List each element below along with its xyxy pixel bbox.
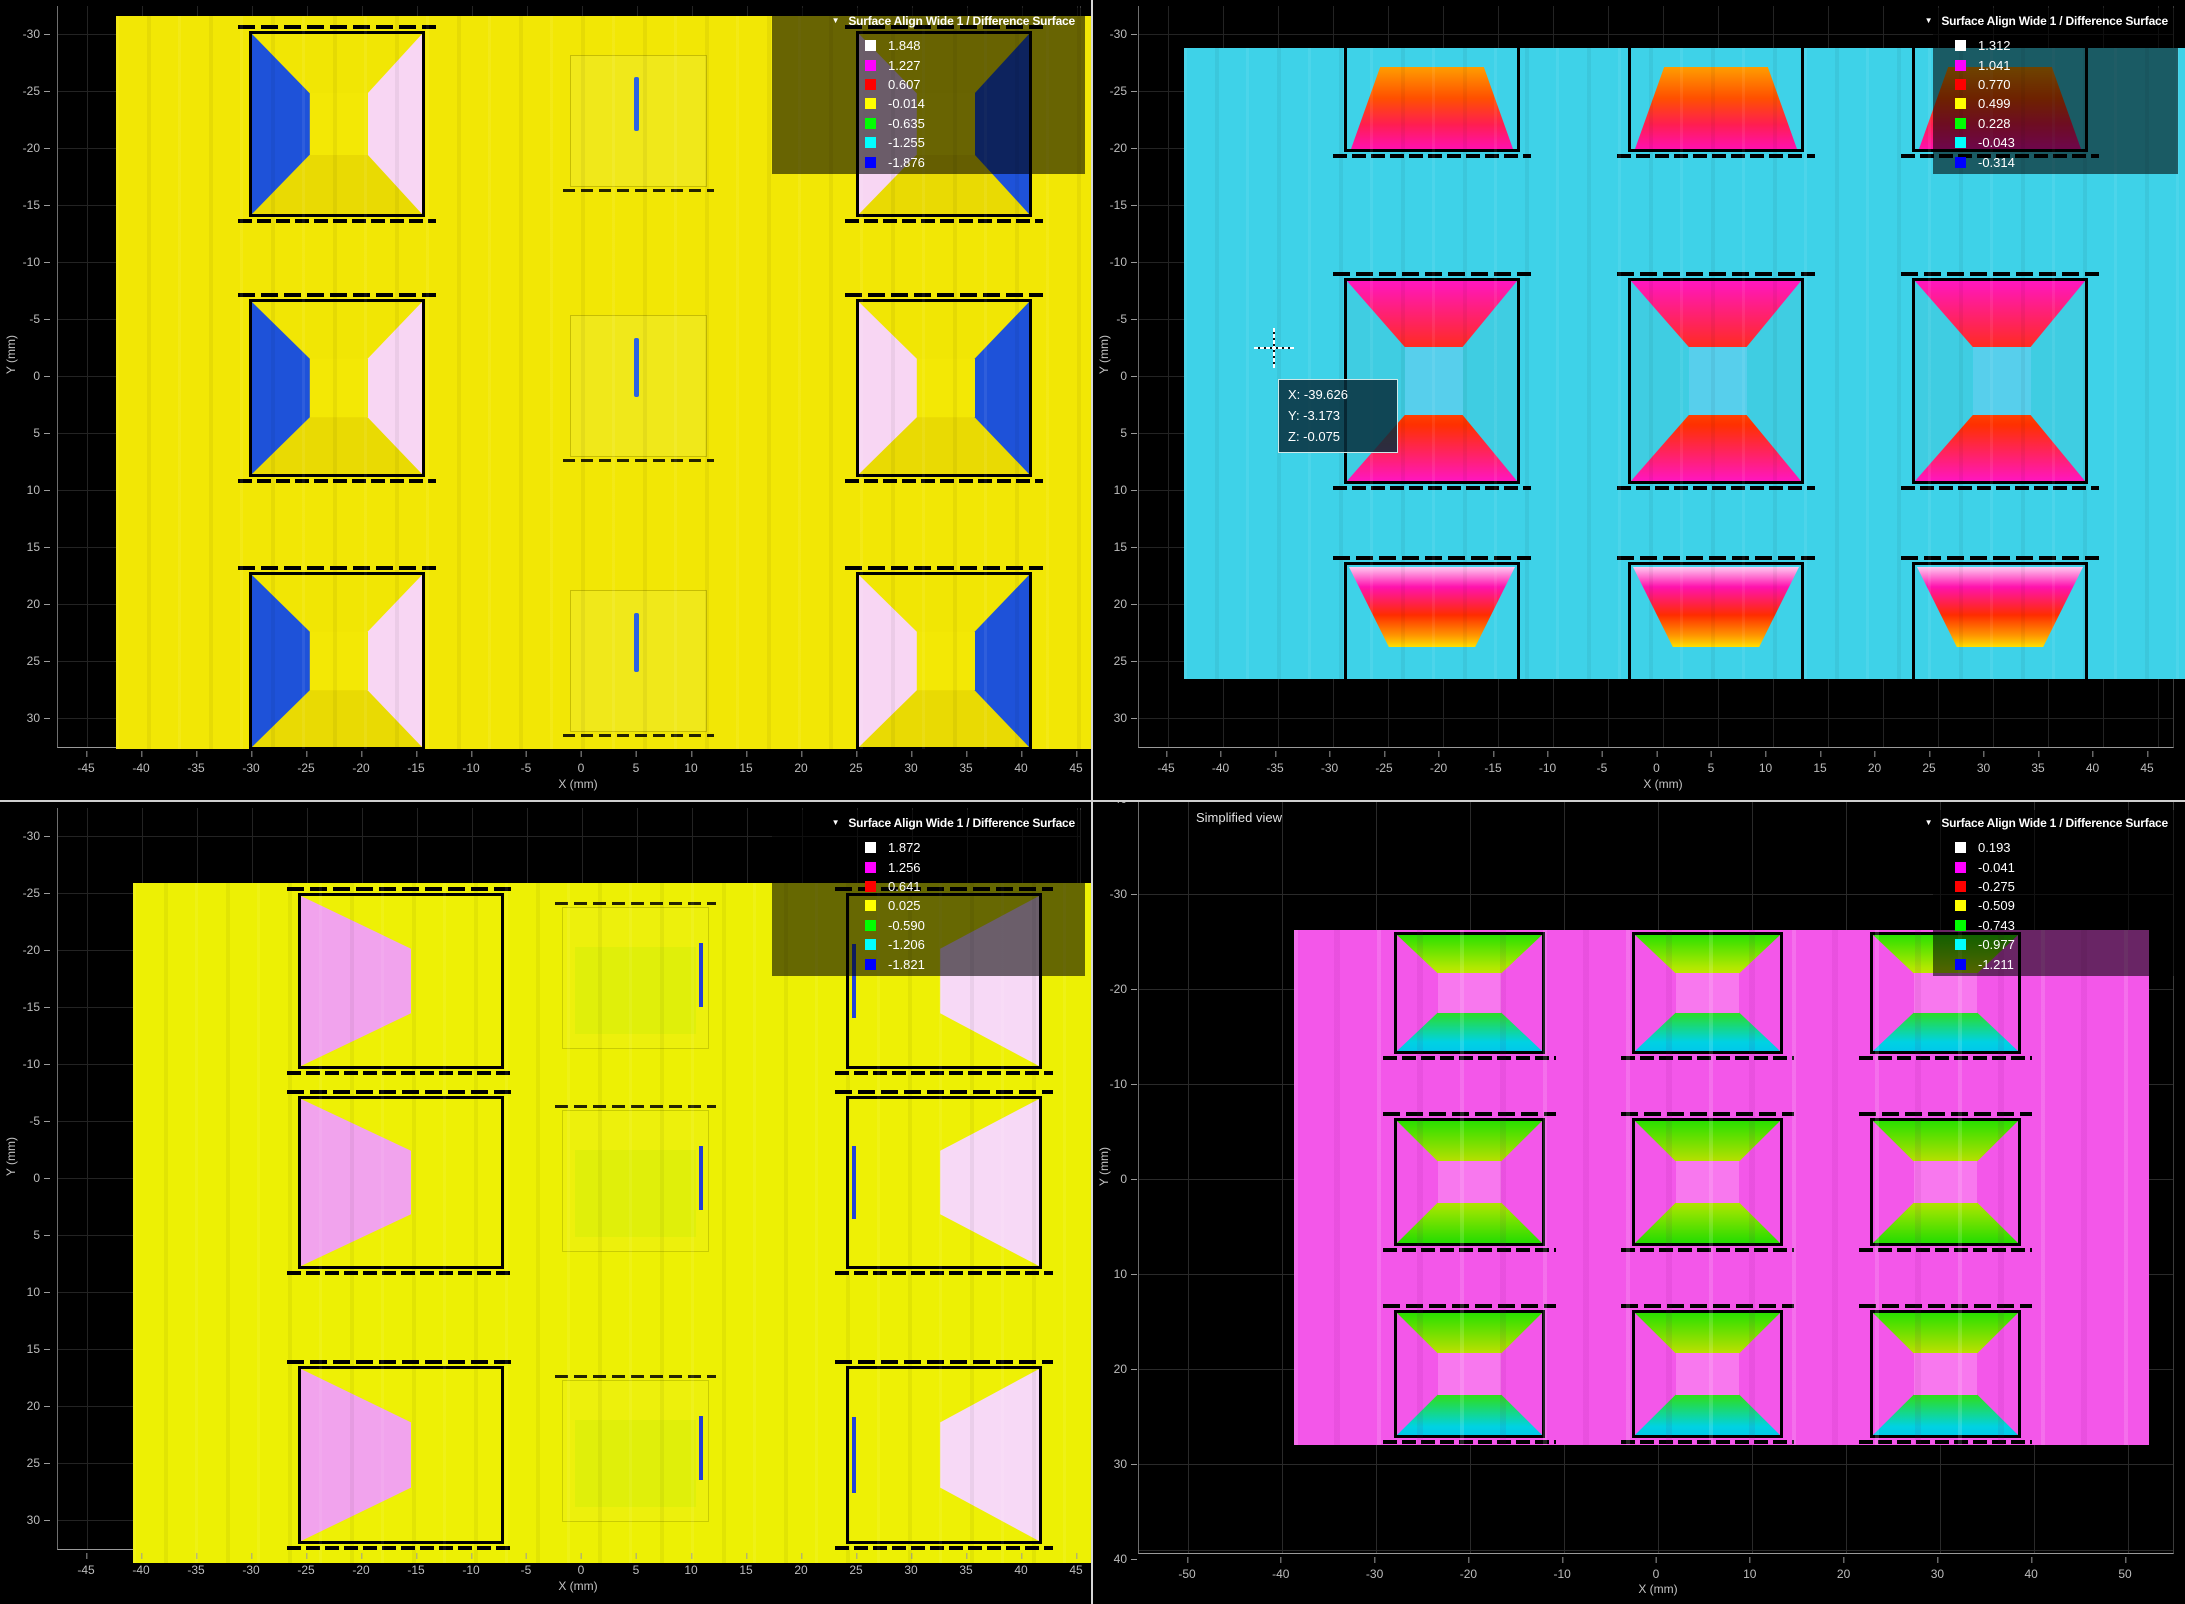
legend-entry: 0.641 xyxy=(865,877,925,896)
legend-entry: 0.770 xyxy=(1955,75,2015,94)
legend-swatch-icon xyxy=(1955,881,1966,892)
legend-title[interactable]: ▼Surface Align Wide 1 / Difference Surfa… xyxy=(1925,14,2168,28)
y-tick-label: 15 xyxy=(27,540,40,554)
x-tick-label: 10 xyxy=(1743,1567,1756,1581)
y-axis-label: Y (mm) xyxy=(4,335,18,374)
pocket-feature-faint xyxy=(571,591,706,731)
tooltip-line: Y: -3.173 xyxy=(1288,406,1388,427)
y-tick-label: -20 xyxy=(1110,982,1127,996)
y-tick-label: 5 xyxy=(33,1228,40,1242)
x-tick-label: 40 xyxy=(2025,1567,2038,1581)
y-tick-label: -10 xyxy=(1110,1077,1127,1091)
pocket-feature xyxy=(846,1096,1042,1269)
legend-entry: 0.228 xyxy=(1955,114,2015,133)
legend-value: -0.509 xyxy=(1978,898,2015,913)
legend-entry: -1.255 xyxy=(865,133,925,152)
pocket-feature xyxy=(249,31,425,217)
x-axis-ticks: -45-40-35-30-25-20-15-10-505101520253035… xyxy=(0,1554,1092,1588)
collapse-triangle-icon[interactable]: ▼ xyxy=(1925,16,1933,25)
legend-entries: 1.8481.2270.607-0.014-0.635-1.255-1.876 xyxy=(865,36,925,172)
legend-swatch-icon xyxy=(1955,939,1966,950)
y-tick-label: 5 xyxy=(33,426,40,440)
legend-entry: 1.227 xyxy=(865,55,925,74)
x-tick-label: 45 xyxy=(1069,761,1082,775)
x-tick-label: -15 xyxy=(1484,761,1501,775)
y-tick-label: -20 xyxy=(1110,141,1127,155)
pocket-feature-clipped xyxy=(1628,562,1804,679)
pocket-feature-clipped xyxy=(1344,48,1520,152)
collapse-triangle-icon[interactable]: ▼ xyxy=(832,818,840,827)
legend-value: -1.211 xyxy=(1978,957,2014,972)
y-tick-label: -25 xyxy=(23,886,40,900)
y-tick-label: -10 xyxy=(1110,255,1127,269)
x-tick-label: 30 xyxy=(904,1563,917,1577)
x-tick-label: 20 xyxy=(1837,1567,1850,1581)
pocket-feature xyxy=(1632,1310,1783,1438)
pocket-feature xyxy=(846,1366,1042,1544)
x-tick-label: 30 xyxy=(904,761,917,775)
y-tick-label: -10 xyxy=(23,255,40,269)
x-axis-label: X (mm) xyxy=(558,777,597,791)
x-tick-label: -10 xyxy=(462,761,479,775)
slit-mark xyxy=(634,338,639,397)
pocket-feature xyxy=(1632,932,1783,1054)
legend-entry: 1.848 xyxy=(865,36,925,55)
legend-entries: 1.3121.0410.7700.4990.228-0.043-0.314 xyxy=(1955,36,2015,172)
x-tick-label: -30 xyxy=(1366,1567,1383,1581)
pocket-feature-faint xyxy=(571,316,706,456)
x-tick-label: 10 xyxy=(684,1563,697,1577)
y-tick-label: -30 xyxy=(23,829,40,843)
x-tick-label: -15 xyxy=(407,761,424,775)
y-tick-label: 10 xyxy=(1114,1267,1127,1281)
x-tick-label: 15 xyxy=(739,1563,752,1577)
legend: ▼Surface Align Wide 1 / Difference Surfa… xyxy=(1933,8,2178,174)
legend-swatch-icon xyxy=(1955,959,1966,970)
surface-map[interactable] xyxy=(133,883,1092,1563)
pocket-feature xyxy=(1870,1310,2021,1438)
slit-mark xyxy=(852,1146,856,1219)
cursor-tooltip: X: -39.626Y: -3.173Z: -0.075 xyxy=(1278,379,1398,453)
y-axis-ticks: -30-25-20-15-10-5051015202530 xyxy=(0,0,52,802)
x-tick-label: -10 xyxy=(462,1563,479,1577)
legend-swatch-icon xyxy=(1955,137,1966,148)
legend-entry: -0.275 xyxy=(1955,877,2015,896)
y-axis-label: Y (mm) xyxy=(1097,335,1111,374)
legend-entry: -0.509 xyxy=(1955,896,2015,915)
panel-divider-horizontal[interactable] xyxy=(0,800,2185,802)
collapse-triangle-icon[interactable]: ▼ xyxy=(832,16,840,25)
slit-mark xyxy=(634,77,639,132)
legend-swatch-icon xyxy=(1955,920,1966,931)
legend-swatch-icon xyxy=(865,98,876,109)
legend-entry: 0.499 xyxy=(1955,94,2015,113)
y-tick-label: 0 xyxy=(1120,1172,1127,1186)
x-tick-label: -40 xyxy=(132,1563,149,1577)
legend-value: -0.041 xyxy=(1978,860,2015,875)
pocket-feature xyxy=(1394,932,1545,1054)
legend-swatch-icon xyxy=(865,862,876,873)
y-tick-label: 15 xyxy=(1114,540,1127,554)
legend-swatch-icon xyxy=(1955,79,1966,90)
y-tick-label: 0 xyxy=(33,369,40,383)
legend-swatch-icon xyxy=(865,842,876,853)
slit-mark xyxy=(699,1146,703,1210)
x-axis-ticks: -45-40-35-30-25-20-15-10-505101520253035… xyxy=(0,752,1092,786)
x-tick-label: -30 xyxy=(242,761,259,775)
legend-value: 0.499 xyxy=(1978,96,2011,111)
tooltip-line: Z: -0.075 xyxy=(1288,427,1388,448)
pocket-feature-faint xyxy=(571,56,706,186)
pocket-feature xyxy=(1912,278,2088,484)
panel-bottom-right: Simplified view -40-30-20-10010203040 -5… xyxy=(1093,802,2185,1604)
legend-value: -0.275 xyxy=(1978,879,2015,894)
legend-swatch-icon xyxy=(1955,900,1966,911)
legend-entry: 1.312 xyxy=(1955,36,2015,55)
x-tick-label: -45 xyxy=(1157,761,1174,775)
y-tick-label: 10 xyxy=(27,483,40,497)
legend-entry: -0.635 xyxy=(865,114,925,133)
pocket-feature-faint xyxy=(563,908,708,1048)
x-tick-label: -40 xyxy=(1272,1567,1289,1581)
y-tick-label: -20 xyxy=(23,141,40,155)
slit-mark xyxy=(699,1416,703,1480)
x-tick-label: 0 xyxy=(1653,1567,1660,1581)
legend-value: 0.607 xyxy=(888,77,921,92)
legend-swatch-icon xyxy=(865,79,876,90)
legend: ▼Surface Align Wide 1 / Difference Surfa… xyxy=(772,810,1085,976)
pocket-feature xyxy=(856,299,1032,477)
legend-entry: -1.821 xyxy=(865,954,925,973)
panel-top-left: -30-25-20-15-10-5051015202530 -45-40-35-… xyxy=(0,0,1092,802)
y-axis-ticks: -30-25-20-15-10-5051015202530 xyxy=(0,802,52,1604)
legend-swatch-icon xyxy=(1955,40,1966,51)
legend-swatch-icon xyxy=(865,920,876,931)
x-axis-label: X (mm) xyxy=(558,1579,597,1593)
y-tick-label: 30 xyxy=(27,711,40,725)
y-tick-label: 30 xyxy=(1114,1457,1127,1471)
legend-swatch-icon xyxy=(865,40,876,51)
x-tick-label: 45 xyxy=(1069,1563,1082,1577)
y-tick-label: -25 xyxy=(1110,84,1127,98)
x-tick-label: 40 xyxy=(2086,761,2099,775)
legend-value: 1.041 xyxy=(1978,58,2011,73)
legend-entry: 0.607 xyxy=(865,75,925,94)
y-tick-label: 0 xyxy=(33,1171,40,1185)
legend-value: 0.770 xyxy=(1978,77,2011,92)
x-tick-label: 0 xyxy=(578,761,585,775)
legend-swatch-icon xyxy=(1955,157,1966,168)
pocket-feature-clipped xyxy=(1628,48,1804,152)
pocket-feature xyxy=(249,572,425,749)
legend: ▼Surface Align Wide 1 / Difference Surfa… xyxy=(1933,810,2178,976)
y-tick-label: 25 xyxy=(1114,654,1127,668)
legend-value: 0.025 xyxy=(888,898,921,913)
y-axis-ticks: -40-30-20-10010203040 xyxy=(1093,802,1139,1604)
x-tick-label: 30 xyxy=(1931,1567,1944,1581)
y-tick-label: -15 xyxy=(23,1000,40,1014)
y-axis-ticks: -30-25-20-15-10-5051015202530 xyxy=(1093,0,1139,802)
legend-entry: -0.014 xyxy=(865,94,925,113)
x-tick-label: -30 xyxy=(1321,761,1338,775)
x-tick-label: -45 xyxy=(77,1563,94,1577)
x-tick-label: -5 xyxy=(521,761,532,775)
x-tick-label: -35 xyxy=(187,1563,204,1577)
legend-entry: -1.876 xyxy=(865,152,925,171)
x-tick-label: -25 xyxy=(297,761,314,775)
legend-value: -0.743 xyxy=(1978,918,2015,933)
pocket-feature xyxy=(1394,1118,1545,1246)
legend-swatch-icon xyxy=(865,157,876,168)
legend-entry: -1.211 xyxy=(1955,954,2015,973)
legend-value: -1.255 xyxy=(888,135,925,150)
y-tick-label: 25 xyxy=(27,1456,40,1470)
x-tick-label: -30 xyxy=(242,1563,259,1577)
x-tick-label: 5 xyxy=(633,761,640,775)
legend-entry: 0.193 xyxy=(1955,838,2015,857)
x-tick-label: -25 xyxy=(297,1563,314,1577)
x-tick-label: 5 xyxy=(633,1563,640,1577)
y-tick-label: -30 xyxy=(23,27,40,41)
x-tick-label: -15 xyxy=(407,1563,424,1577)
y-tick-label: -15 xyxy=(1110,198,1127,212)
x-tick-label: 0 xyxy=(578,1563,585,1577)
legend-title[interactable]: ▼Surface Align Wide 1 / Difference Surfa… xyxy=(1925,816,2168,830)
legend-swatch-icon xyxy=(1955,98,1966,109)
legend-entry: 1.041 xyxy=(1955,55,2015,74)
x-tick-label: -5 xyxy=(1597,761,1608,775)
legend-title[interactable]: ▼Surface Align Wide 1 / Difference Surfa… xyxy=(832,14,1075,28)
y-tick-label: 15 xyxy=(27,1342,40,1356)
legend-swatch-icon xyxy=(865,939,876,950)
y-tick-label: -30 xyxy=(1110,887,1127,901)
x-tick-label: -40 xyxy=(132,761,149,775)
y-tick-label: -40 xyxy=(1110,802,1127,806)
x-tick-label: -10 xyxy=(1539,761,1556,775)
panel-top-right: X: -39.626Y: -3.173Z: -0.075 -30-25-20-1… xyxy=(1093,0,2185,802)
x-tick-label: 35 xyxy=(2031,761,2044,775)
legend-title[interactable]: ▼Surface Align Wide 1 / Difference Surfa… xyxy=(832,816,1075,830)
legend-entry: 1.872 xyxy=(865,838,925,857)
x-tick-label: 35 xyxy=(959,1563,972,1577)
pocket-feature-faint xyxy=(563,1111,708,1251)
legend-swatch-icon xyxy=(865,60,876,71)
x-tick-label: -25 xyxy=(1375,761,1392,775)
legend-swatch-icon xyxy=(1955,118,1966,129)
legend-entry: 1.256 xyxy=(865,857,925,876)
pocket-feature-clipped xyxy=(1912,562,2088,679)
legend-value: -1.206 xyxy=(888,937,925,952)
y-axis-label: Y (mm) xyxy=(4,1137,18,1176)
y-tick-label: -20 xyxy=(23,943,40,957)
x-tick-label: -20 xyxy=(1460,1567,1477,1581)
legend-swatch-icon xyxy=(1955,862,1966,873)
legend-value: 1.872 xyxy=(888,840,921,855)
legend-value: -0.977 xyxy=(1978,937,2015,952)
legend-entry: -0.977 xyxy=(1955,935,2015,954)
legend-entry: -0.314 xyxy=(1955,152,2015,171)
x-tick-label: 20 xyxy=(1868,761,1881,775)
legend-entry: -1.206 xyxy=(865,935,925,954)
crosshair-cursor xyxy=(1254,328,1294,368)
x-tick-label: -20 xyxy=(1430,761,1447,775)
pocket-feature xyxy=(298,893,504,1069)
legend-swatch-icon xyxy=(865,900,876,911)
pocket-feature xyxy=(249,299,425,477)
y-tick-label: 30 xyxy=(27,1513,40,1527)
x-tick-label: -20 xyxy=(352,761,369,775)
x-tick-label: -35 xyxy=(187,761,204,775)
x-tick-label: 10 xyxy=(684,761,697,775)
y-axis-label: Y (mm) xyxy=(1097,1147,1111,1186)
pocket-feature xyxy=(298,1096,504,1269)
y-tick-label: -5 xyxy=(29,1114,40,1128)
legend-entries: 1.8721.2560.6410.025-0.590-1.206-1.821 xyxy=(865,838,925,974)
legend-swatch-icon xyxy=(865,118,876,129)
y-tick-label: -25 xyxy=(23,84,40,98)
app-window: -30-25-20-15-10-5051015202530 -45-40-35-… xyxy=(0,0,2185,1604)
legend-entry: -0.743 xyxy=(1955,916,2015,935)
x-tick-label: -45 xyxy=(77,761,94,775)
x-tick-label: 25 xyxy=(849,1563,862,1577)
x-tick-label: 40 xyxy=(1014,1563,1027,1577)
pocket-feature xyxy=(1870,1118,2021,1246)
y-tick-label: -15 xyxy=(23,198,40,212)
x-tick-label: 20 xyxy=(794,1563,807,1577)
x-tick-label: -50 xyxy=(1178,1567,1195,1581)
y-tick-label: -5 xyxy=(29,312,40,326)
y-tick-label: 5 xyxy=(1120,426,1127,440)
panel-divider-vertical[interactable] xyxy=(1091,0,1093,1604)
surface-map[interactable] xyxy=(1294,930,2149,1445)
pocket-feature xyxy=(298,1366,504,1544)
x-tick-label: -10 xyxy=(1554,1567,1571,1581)
slit-mark xyxy=(699,943,703,1007)
x-tick-label: 50 xyxy=(2118,1567,2131,1581)
y-tick-label: 10 xyxy=(1114,483,1127,497)
legend-entries: 0.193-0.041-0.275-0.509-0.743-0.977-1.21… xyxy=(1955,838,2015,974)
slit-mark xyxy=(634,613,639,672)
legend-entry: -0.041 xyxy=(1955,857,2015,876)
pocket-feature xyxy=(1394,1310,1545,1438)
slit-mark xyxy=(852,1417,856,1493)
x-axis-label: X (mm) xyxy=(1643,777,1682,791)
pocket-feature-clipped xyxy=(1344,562,1520,679)
x-tick-label: -20 xyxy=(352,1563,369,1577)
legend-swatch-icon xyxy=(865,881,876,892)
legend-swatch-icon xyxy=(865,959,876,970)
legend-entry: 0.025 xyxy=(865,896,925,915)
legend-value: -1.876 xyxy=(888,155,925,170)
legend-value: -0.635 xyxy=(888,116,925,131)
legend-entry: -0.590 xyxy=(865,916,925,935)
y-tick-label: 20 xyxy=(27,1399,40,1413)
legend-value: -0.043 xyxy=(1978,135,2015,150)
x-tick-label: -40 xyxy=(1212,761,1229,775)
x-tick-label: 20 xyxy=(794,761,807,775)
x-tick-label: 0 xyxy=(1653,761,1660,775)
legend-value: 0.193 xyxy=(1978,840,2011,855)
x-tick-label: 45 xyxy=(2140,761,2153,775)
x-tick-label: 30 xyxy=(1977,761,1990,775)
legend-entry: -0.043 xyxy=(1955,133,2015,152)
y-tick-label: -10 xyxy=(23,1057,40,1071)
legend-value: -0.590 xyxy=(888,918,925,933)
y-tick-label: -30 xyxy=(1110,27,1127,41)
y-tick-label: 20 xyxy=(1114,597,1127,611)
panel-bottom-left: -30-25-20-15-10-5051015202530 -45-40-35-… xyxy=(0,802,1092,1604)
x-axis-label: X (mm) xyxy=(1638,1582,1677,1596)
legend-value: -0.014 xyxy=(888,96,925,111)
legend-value: -1.821 xyxy=(888,957,925,972)
y-tick-label: 25 xyxy=(27,654,40,668)
pocket-feature xyxy=(856,572,1032,749)
legend-value: -0.314 xyxy=(1978,155,2015,170)
x-tick-label: 35 xyxy=(959,761,972,775)
y-tick-label: 20 xyxy=(1114,1362,1127,1376)
x-tick-label: 10 xyxy=(1759,761,1772,775)
x-tick-label: -35 xyxy=(1266,761,1283,775)
y-tick-label: -5 xyxy=(1116,312,1127,326)
legend-value: 1.312 xyxy=(1978,38,2011,53)
x-tick-label: 25 xyxy=(849,761,862,775)
pocket-feature xyxy=(1632,1118,1783,1246)
tooltip-line: X: -39.626 xyxy=(1288,385,1388,406)
y-tick-label: 20 xyxy=(27,597,40,611)
legend-value: 1.848 xyxy=(888,38,921,53)
view-mode-label: Simplified view xyxy=(1196,810,1282,825)
x-tick-label: 15 xyxy=(739,761,752,775)
x-tick-label: -5 xyxy=(521,1563,532,1577)
legend-swatch-icon xyxy=(865,137,876,148)
x-tick-label: 15 xyxy=(1813,761,1826,775)
legend-swatch-icon xyxy=(1955,842,1966,853)
y-tick-label: 0 xyxy=(1120,369,1127,383)
collapse-triangle-icon[interactable]: ▼ xyxy=(1925,818,1933,827)
pocket-feature-faint xyxy=(563,1381,708,1521)
x-tick-label: 25 xyxy=(1922,761,1935,775)
pocket-feature xyxy=(1628,278,1804,484)
x-axis-ticks: -45-40-35-30-25-20-15-10-505101520253035… xyxy=(1093,752,2185,786)
legend-value: 0.641 xyxy=(888,879,921,894)
legend-swatch-icon xyxy=(1955,60,1966,71)
y-tick-label: 10 xyxy=(27,1285,40,1299)
legend-value: 1.256 xyxy=(888,860,921,875)
legend-value: 0.228 xyxy=(1978,116,2011,131)
legend: ▼Surface Align Wide 1 / Difference Surfa… xyxy=(772,8,1085,174)
y-tick-label: 30 xyxy=(1114,711,1127,725)
x-tick-label: 40 xyxy=(1014,761,1027,775)
x-tick-label: 5 xyxy=(1708,761,1715,775)
legend-value: 1.227 xyxy=(888,58,921,73)
